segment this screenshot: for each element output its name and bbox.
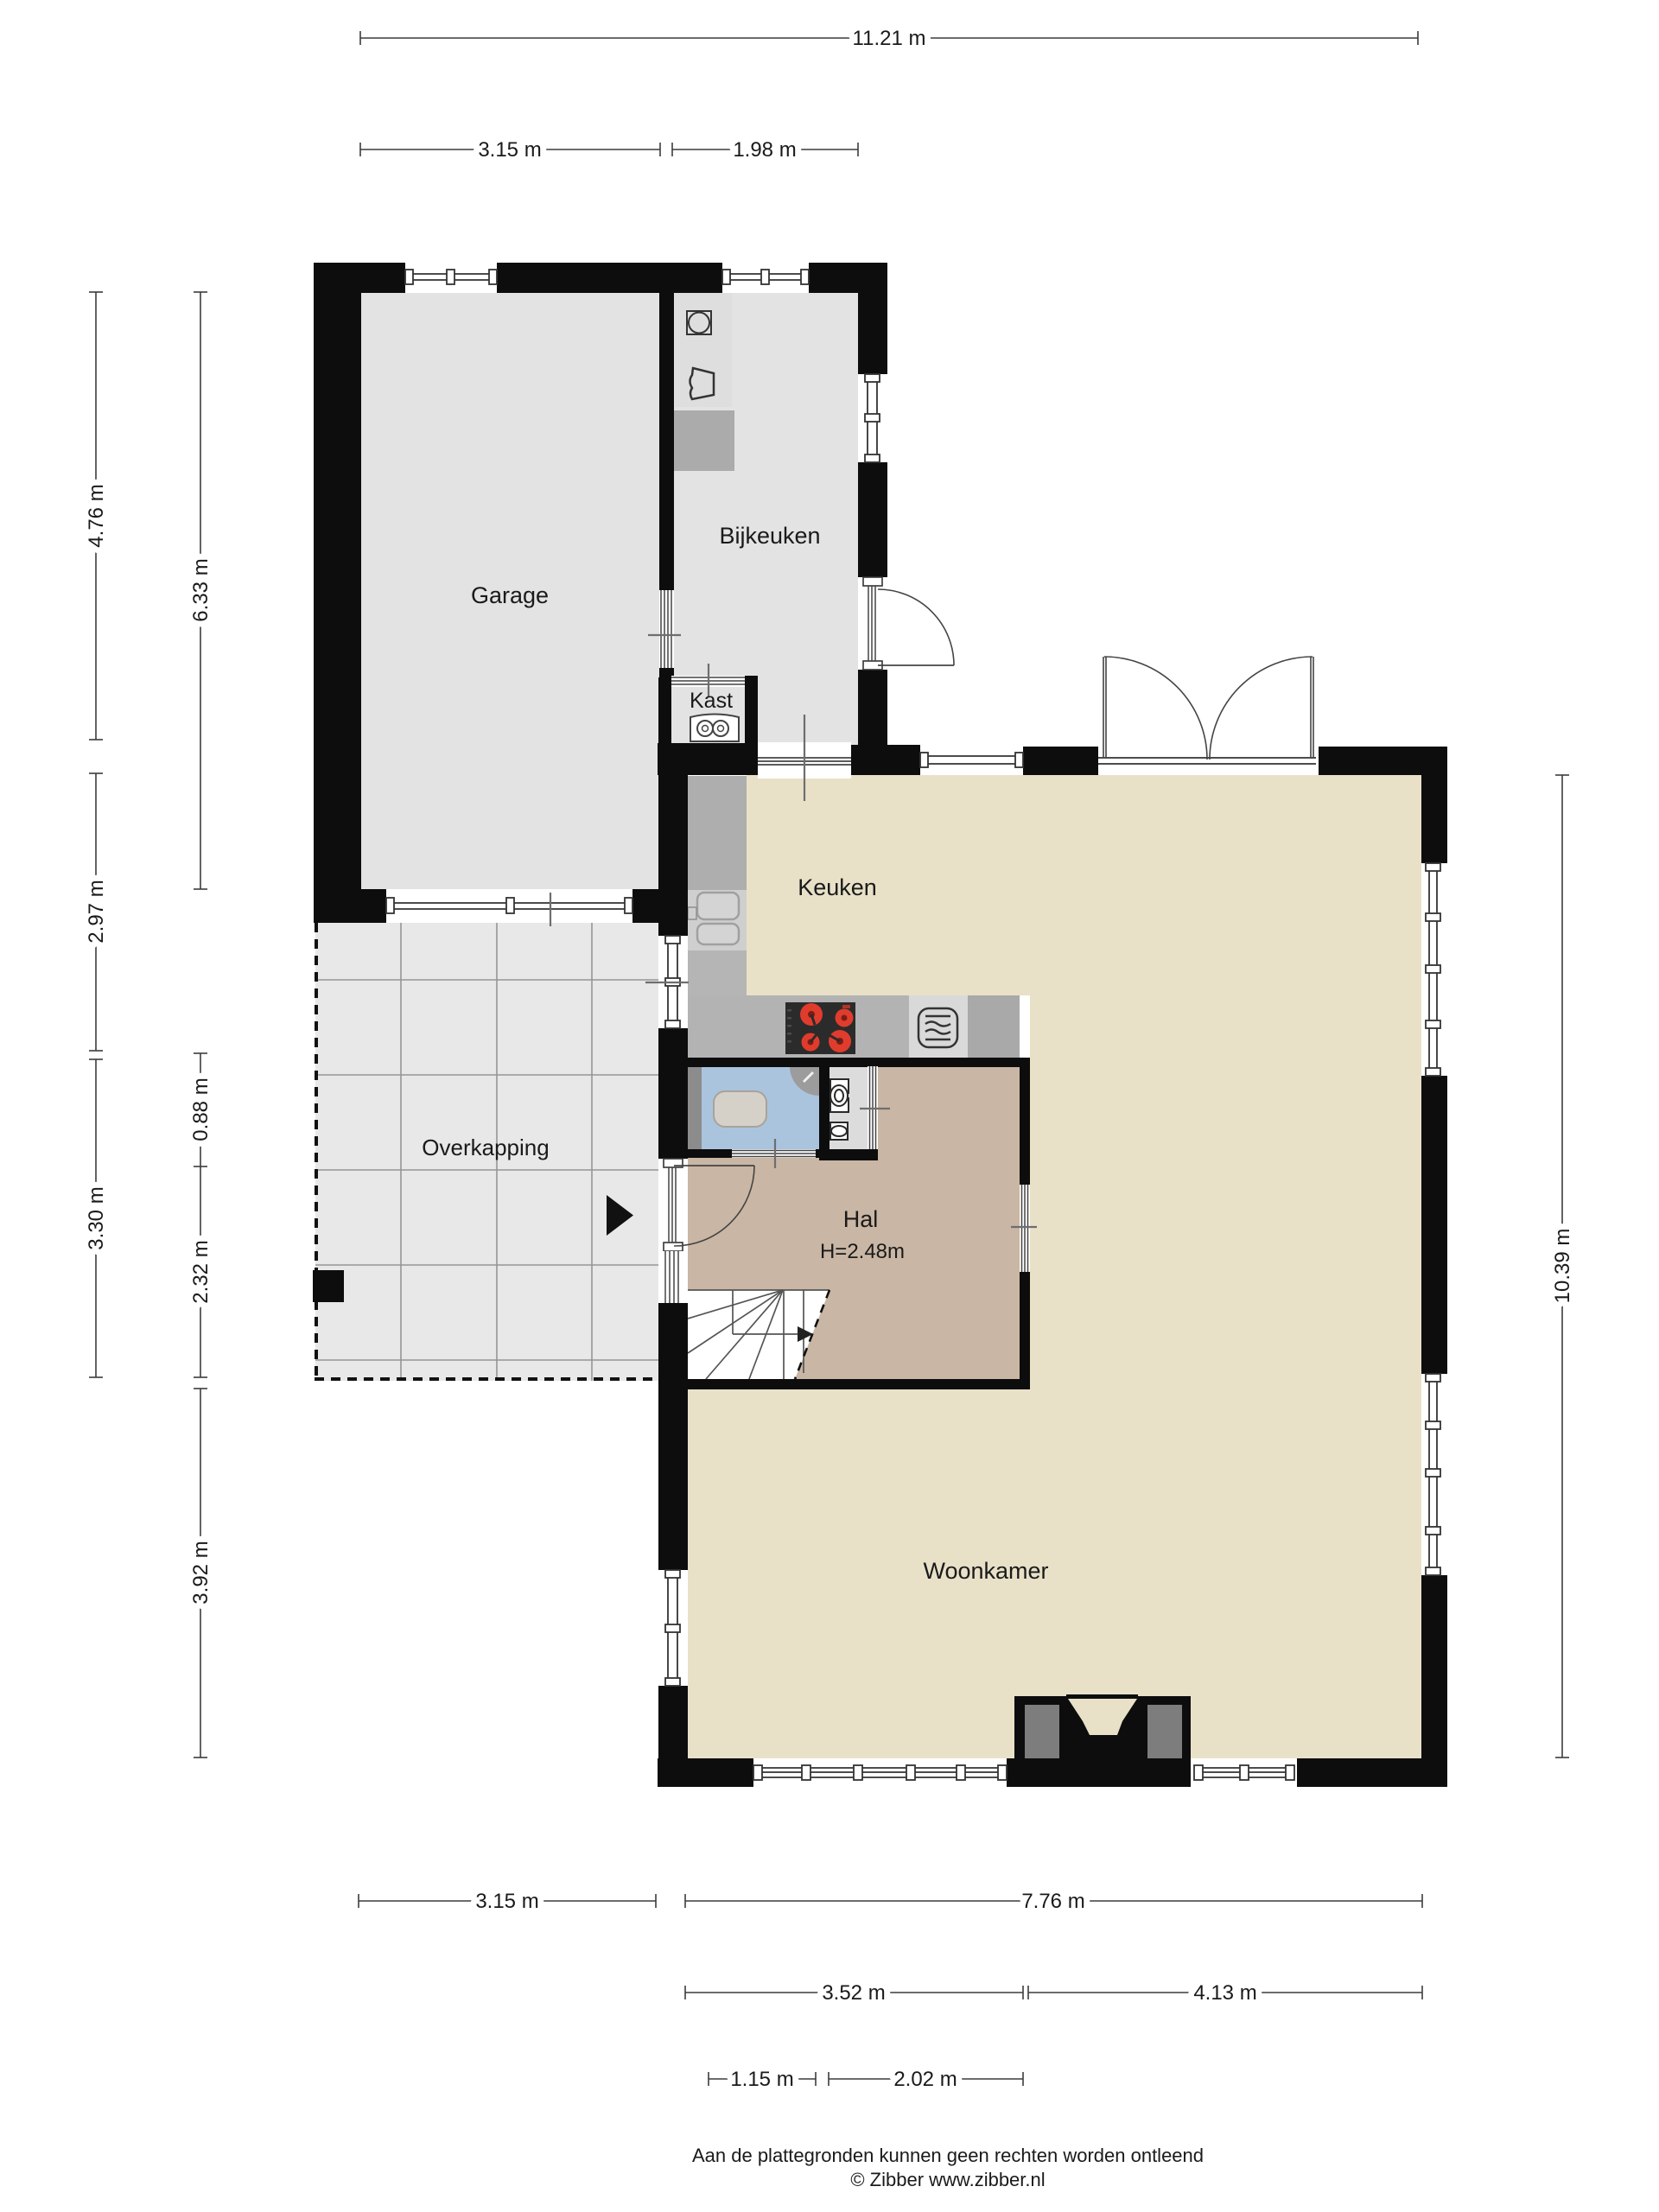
- svg-text:Hal: Hal: [843, 1206, 879, 1232]
- svg-text:11.21 m: 11.21 m: [853, 27, 926, 50]
- svg-text:3.15 m: 3.15 m: [475, 1890, 538, 1913]
- svg-text:Aan de plattegronden kunnen ge: Aan de plattegronden kunnen geen rechten…: [692, 2145, 1204, 2166]
- svg-text:H=2.48m: H=2.48m: [820, 1240, 905, 1263]
- svg-text:2.02 m: 2.02 m: [893, 2068, 957, 2091]
- svg-text:Overkapping: Overkapping: [422, 1135, 549, 1160]
- svg-text:Bijkeuken: Bijkeuken: [719, 523, 820, 549]
- svg-text:© Zibber www.zibber.nl: © Zibber www.zibber.nl: [850, 2169, 1045, 2190]
- svg-text:2.97 m: 2.97 m: [85, 880, 108, 943]
- svg-text:6.33 m: 6.33 m: [189, 558, 213, 621]
- svg-text:Garage: Garage: [471, 582, 549, 608]
- svg-text:0.88 m: 0.88 m: [189, 1077, 213, 1141]
- svg-text:3.92 m: 3.92 m: [189, 1541, 213, 1604]
- svg-text:Woonkamer: Woonkamer: [923, 1558, 1048, 1584]
- svg-text:4.76 m: 4.76 m: [85, 484, 108, 547]
- svg-text:Kast: Kast: [690, 689, 733, 713]
- svg-text:4.13 m: 4.13 m: [1193, 1981, 1256, 2005]
- svg-text:3.52 m: 3.52 m: [822, 1981, 885, 2005]
- svg-text:1.98 m: 1.98 m: [733, 138, 796, 162]
- svg-text:1.15 m: 1.15 m: [730, 2068, 793, 2091]
- svg-text:Keuken: Keuken: [798, 874, 877, 900]
- svg-text:7.76 m: 7.76 m: [1021, 1890, 1084, 1913]
- svg-text:3.30 m: 3.30 m: [85, 1186, 108, 1249]
- svg-text:2.32 m: 2.32 m: [189, 1240, 213, 1303]
- svg-text:10.39 m: 10.39 m: [1551, 1229, 1574, 1304]
- svg-text:3.15 m: 3.15 m: [478, 138, 541, 162]
